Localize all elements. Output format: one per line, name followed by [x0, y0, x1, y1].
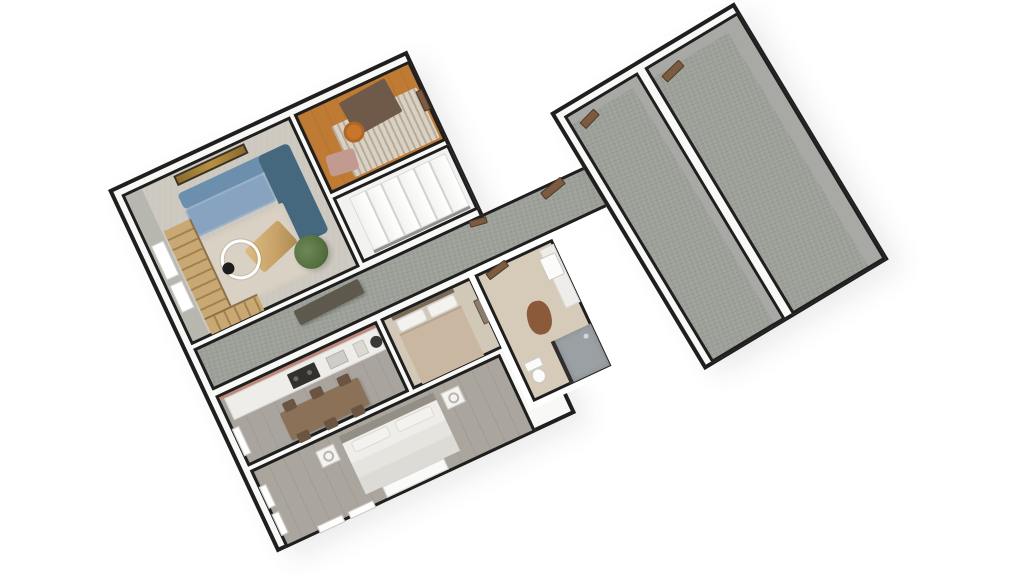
nightstand-right	[440, 385, 466, 410]
window	[232, 426, 252, 457]
window	[347, 500, 376, 519]
walk-in-shower	[551, 324, 610, 384]
table-lamp	[321, 449, 336, 464]
window	[259, 484, 276, 509]
floorplan-canvas	[0, 0, 1024, 576]
bathroom-door	[485, 260, 509, 281]
round-appliance	[368, 334, 384, 350]
nightstand-left	[315, 444, 341, 469]
small-appliance	[352, 339, 369, 358]
wall-face	[723, 16, 882, 266]
window	[317, 514, 346, 533]
interior-door	[469, 216, 488, 228]
cooktop	[287, 362, 321, 389]
burner	[306, 369, 313, 376]
entry-door	[540, 177, 566, 200]
bath-mat	[524, 298, 555, 337]
table-lamp	[446, 391, 461, 406]
right-wing	[550, 2, 889, 370]
burner	[293, 375, 300, 382]
left-wing	[108, 51, 576, 553]
shower-head	[581, 332, 590, 341]
kitchen-sink	[325, 349, 349, 369]
window	[271, 511, 288, 536]
